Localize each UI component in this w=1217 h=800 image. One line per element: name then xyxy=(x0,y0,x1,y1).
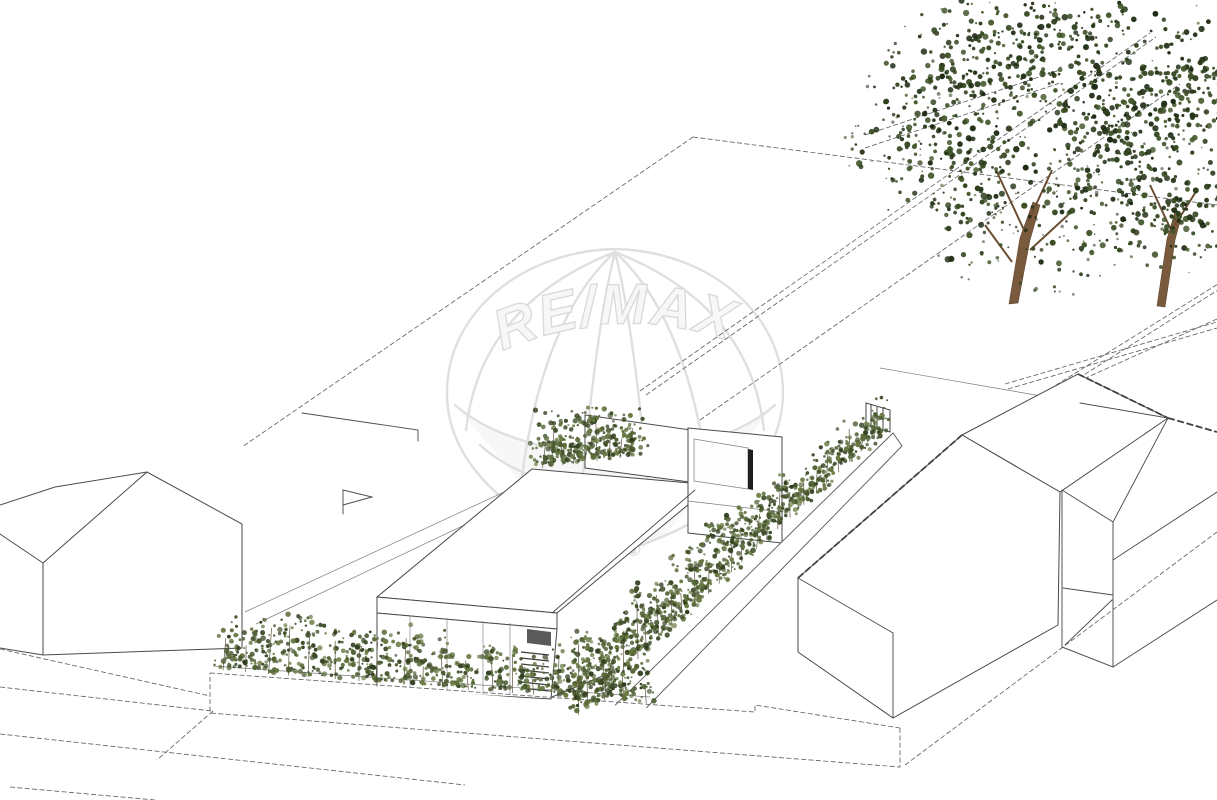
architectural-line-drawing: RE/MAX ® xyxy=(0,0,1217,800)
plane-vent-flag xyxy=(343,490,372,514)
site-3d-rendering: RE/MAX ® xyxy=(0,0,1217,800)
garden-trees xyxy=(844,0,1217,307)
tree-foliage xyxy=(844,0,1217,296)
rear-window xyxy=(694,439,748,489)
rear-window-dark-frame xyxy=(748,449,753,490)
left-gabled-house xyxy=(0,472,242,655)
right-house-front xyxy=(798,435,1060,718)
watermark-brand-text: RE/MAX xyxy=(485,272,746,362)
